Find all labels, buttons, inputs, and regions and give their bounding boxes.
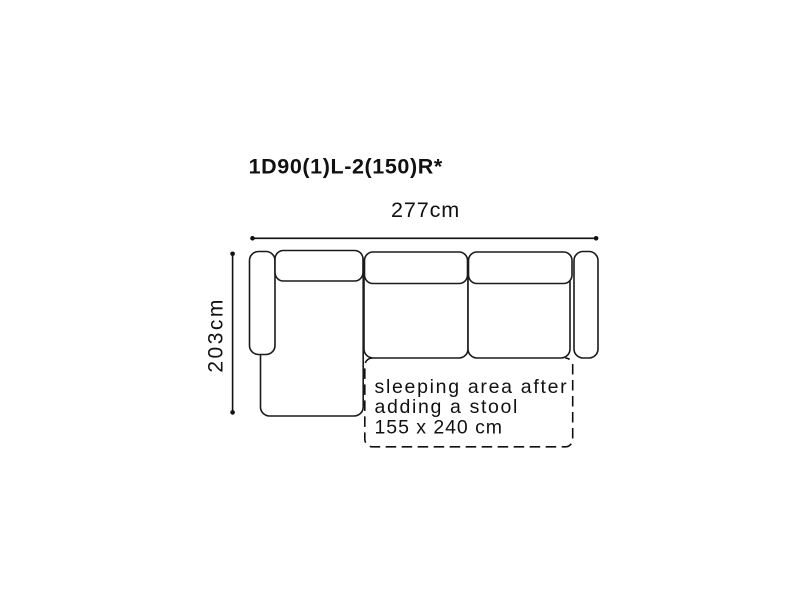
- svg-text:277cm: 277cm: [391, 197, 460, 222]
- svg-text:sleeping area after: sleeping area after: [375, 376, 569, 398]
- svg-text:203cm: 203cm: [205, 297, 228, 373]
- svg-text:155 x 240 cm: 155 x 240 cm: [375, 416, 503, 438]
- svg-text:adding a stool: adding a stool: [375, 396, 520, 418]
- svg-text:1D90(1)L-2(150)R*: 1D90(1)L-2(150)R*: [249, 155, 443, 179]
